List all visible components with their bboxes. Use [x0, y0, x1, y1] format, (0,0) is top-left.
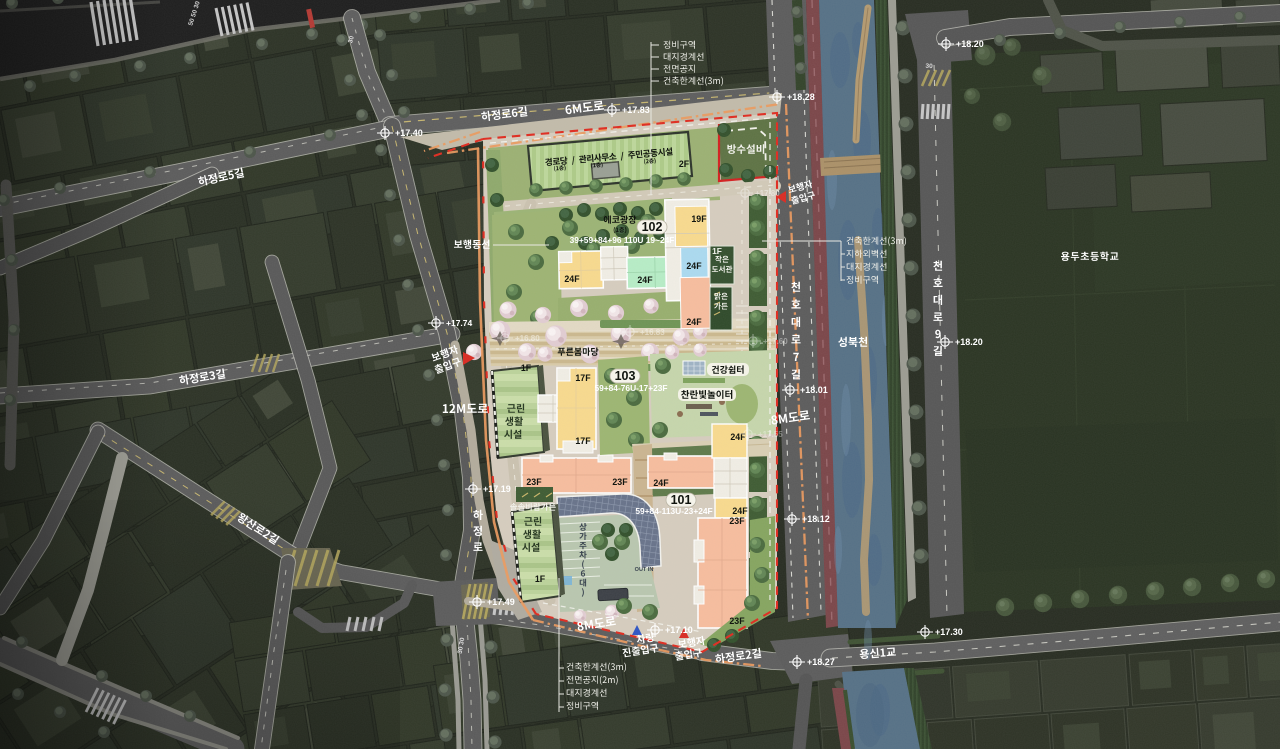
svg-text:+18.20: +18.20	[956, 39, 984, 49]
svg-text:23F: 23F	[729, 616, 745, 626]
svg-text:+17.55: +17.55	[758, 430, 783, 439]
svg-text:+16.83: +16.83	[640, 328, 665, 337]
svg-text:103: 103	[615, 369, 636, 383]
svg-text:24F: 24F	[564, 274, 580, 284]
svg-text:+17.40: +17.40	[395, 128, 423, 138]
svg-text:1F: 1F	[712, 246, 722, 256]
svg-text:23F: 23F	[526, 477, 542, 487]
svg-text:OUT IN: OUT IN	[635, 567, 654, 573]
svg-text:23F: 23F	[729, 516, 745, 526]
svg-text:+17.19: +17.19	[483, 484, 511, 494]
svg-text:102: 102	[642, 220, 663, 234]
svg-text:24F: 24F	[732, 506, 748, 516]
svg-text:+16.80: +16.80	[515, 334, 540, 343]
svg-text:+17.80: +17.80	[755, 189, 780, 198]
svg-text:17F: 17F	[575, 373, 591, 383]
svg-text:1F: 1F	[521, 363, 532, 373]
svg-text:30: 30	[925, 63, 933, 70]
svg-text:+18.27: +18.27	[807, 657, 835, 667]
svg-text:24F: 24F	[637, 275, 653, 285]
svg-text:24F: 24F	[686, 261, 702, 271]
svg-text:+18.12: +18.12	[802, 514, 830, 524]
svg-text:101: 101	[671, 493, 692, 507]
svg-text:+17.30: +17.30	[935, 627, 963, 637]
svg-text:39+59+84+96 110U 19~24F: 39+59+84+96 110U 19~24F	[570, 235, 675, 245]
svg-text:19F: 19F	[691, 214, 707, 224]
svg-text:2F: 2F	[679, 159, 690, 169]
svg-text:59+84-113U-23+24F: 59+84-113U-23+24F	[635, 506, 712, 516]
svg-text:+18.20: +18.20	[955, 337, 983, 347]
svg-text:+17.83: +17.83	[622, 105, 650, 115]
svg-text:+17.49: +17.49	[487, 597, 515, 607]
svg-text:+18.28: +18.28	[787, 92, 815, 102]
svg-text:59+84-76U-17+23F: 59+84-76U-17+23F	[594, 383, 667, 393]
svg-text:+17.60: +17.60	[763, 337, 788, 346]
svg-text:23F: 23F	[612, 477, 628, 487]
svg-text:+17.10: +17.10	[665, 625, 693, 635]
svg-text:24F: 24F	[653, 478, 669, 488]
svg-text:+18.01: +18.01	[800, 385, 828, 395]
svg-text:17F: 17F	[575, 436, 591, 446]
svg-text:+17.74: +17.74	[446, 318, 473, 328]
svg-text:24F: 24F	[686, 317, 702, 327]
svg-text:1F: 1F	[535, 574, 546, 584]
